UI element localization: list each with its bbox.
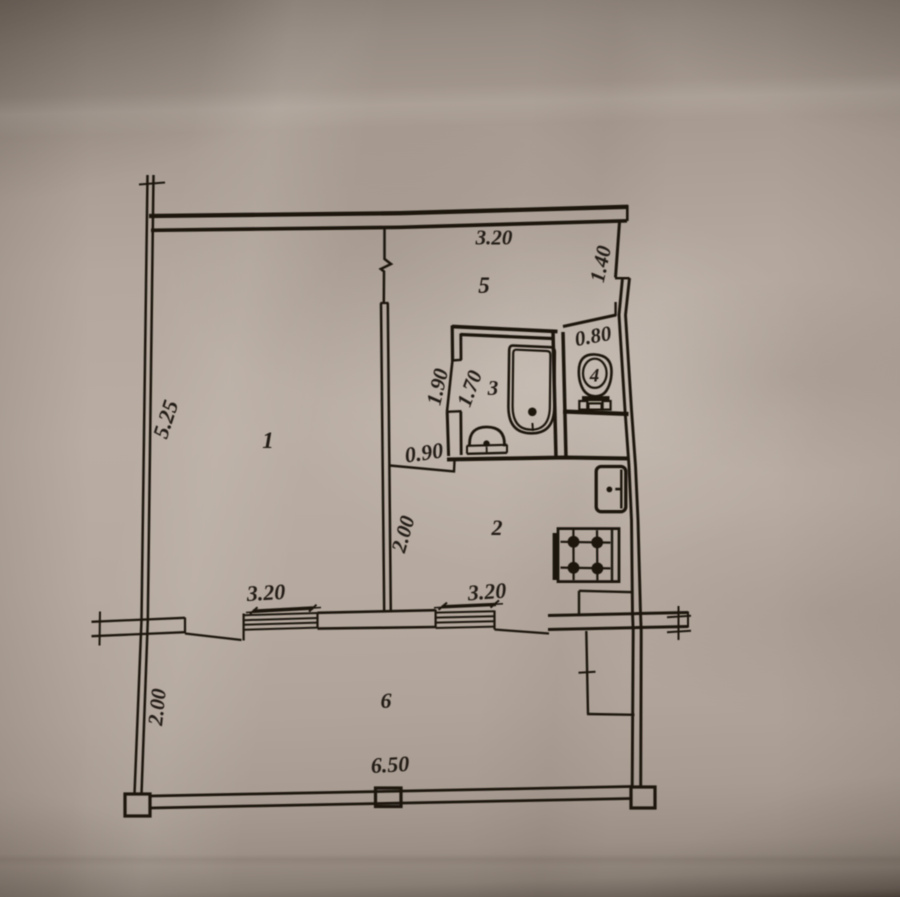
- svg-text:5: 5: [478, 273, 490, 298]
- svg-text:2.00: 2.00: [143, 687, 171, 728]
- svg-text:1: 1: [262, 428, 274, 453]
- svg-text:3.20: 3.20: [466, 578, 507, 606]
- svg-text:1.70: 1.70: [452, 367, 487, 410]
- svg-text:0.90: 0.90: [403, 437, 445, 467]
- svg-text:2.00: 2.00: [386, 513, 420, 556]
- svg-text:2: 2: [491, 515, 503, 540]
- svg-text:6: 6: [381, 688, 392, 713]
- svg-text:3.20: 3.20: [245, 579, 286, 606]
- svg-text:1.40: 1.40: [585, 243, 616, 284]
- svg-text:5.25: 5.25: [148, 397, 184, 441]
- svg-text:4: 4: [589, 366, 600, 387]
- svg-text:0.80: 0.80: [573, 321, 614, 351]
- svg-text:3.20: 3.20: [475, 226, 513, 250]
- svg-text:6.50: 6.50: [370, 751, 410, 778]
- svg-text:3: 3: [487, 376, 499, 400]
